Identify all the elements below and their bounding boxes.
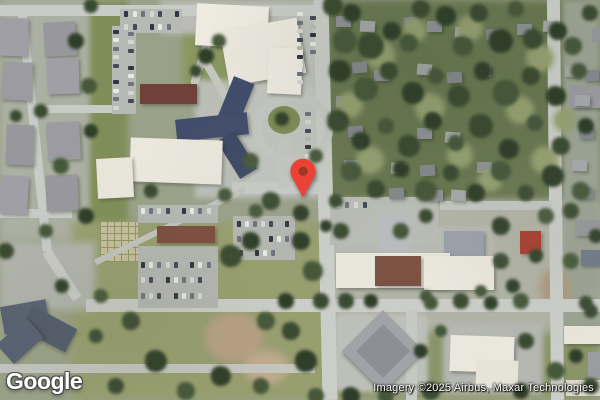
car: [174, 208, 178, 214]
car: [113, 97, 119, 101]
car: [113, 38, 119, 42]
car: [237, 221, 241, 227]
building-apartment: [0, 18, 29, 57]
tree: [414, 344, 428, 358]
car: [207, 262, 211, 268]
car: [141, 11, 145, 17]
car: [166, 208, 170, 214]
car: [190, 293, 194, 299]
tree: [424, 112, 442, 130]
building-house: [420, 164, 436, 176]
car: [113, 106, 119, 110]
tree: [329, 60, 351, 82]
building-house: [360, 20, 376, 32]
car: [150, 24, 154, 30]
tree: [342, 387, 360, 400]
tree: [212, 34, 226, 48]
tree: [303, 261, 323, 281]
car: [174, 293, 178, 299]
tree: [378, 118, 394, 134]
tree: [78, 208, 94, 224]
building-brown: [375, 256, 421, 286]
car: [271, 250, 275, 256]
tree: [10, 110, 22, 122]
tree: [578, 118, 594, 134]
tree: [475, 285, 487, 297]
tree: [448, 85, 470, 107]
tree: [190, 65, 202, 77]
car: [305, 129, 311, 133]
car: [113, 80, 119, 84]
tree: [320, 220, 332, 232]
tree: [518, 185, 534, 201]
tree: [491, 161, 511, 181]
tree: [435, 325, 447, 337]
tree: [84, 0, 98, 13]
car: [157, 293, 161, 299]
car: [310, 33, 316, 37]
car: [128, 66, 134, 70]
tree: [420, 290, 432, 302]
car: [354, 202, 358, 208]
car: [128, 32, 134, 36]
car: [149, 293, 153, 299]
car: [182, 208, 186, 214]
car: [310, 16, 316, 20]
tree: [453, 293, 469, 309]
tree: [380, 62, 398, 80]
tree: [453, 36, 473, 56]
tree: [513, 293, 529, 309]
car: [263, 250, 267, 256]
car: [128, 99, 134, 103]
car: [198, 208, 202, 214]
tree: [508, 1, 524, 17]
map-scene: [0, 0, 600, 400]
car: [157, 262, 161, 268]
car: [113, 47, 119, 51]
car: [174, 262, 178, 268]
car: [297, 12, 303, 16]
tree: [292, 232, 310, 250]
car: [141, 262, 145, 268]
building-apartment: [46, 57, 79, 94]
car: [182, 277, 186, 283]
tree: [571, 63, 587, 79]
tree: [308, 388, 324, 400]
building: [564, 326, 600, 344]
tree: [470, 4, 488, 22]
carport: [444, 231, 484, 259]
building: [592, 28, 600, 42]
tree: [469, 114, 493, 138]
building-apartment: [0, 175, 29, 214]
tree: [393, 223, 409, 239]
car: [166, 293, 170, 299]
car: [113, 89, 119, 93]
car: [128, 40, 134, 44]
tree: [81, 78, 97, 94]
car: [261, 236, 265, 242]
building-apartment: [1, 61, 33, 101]
building-brown: [140, 84, 197, 104]
building-apartment: [46, 121, 81, 161]
car: [305, 120, 311, 124]
car: [124, 24, 128, 30]
car: [124, 11, 128, 17]
car: [158, 24, 162, 30]
tree: [546, 86, 566, 106]
building-apartment: [45, 174, 78, 211]
tree: [419, 209, 433, 223]
car: [297, 55, 303, 59]
tree: [400, 34, 418, 52]
tree: [522, 67, 540, 85]
tree: [108, 378, 124, 394]
car: [269, 236, 273, 242]
tree: [327, 110, 349, 132]
car: [149, 262, 153, 268]
tree: [333, 29, 357, 53]
car: [141, 208, 145, 214]
tree: [383, 22, 401, 40]
car: [113, 30, 119, 34]
car: [285, 221, 289, 227]
marker-pin-dot: [298, 167, 307, 176]
car: [157, 208, 161, 214]
tree: [467, 184, 485, 202]
car: [190, 277, 194, 283]
car: [247, 250, 251, 256]
tree: [563, 253, 579, 269]
lawn-patch: [553, 108, 577, 132]
car: [297, 46, 303, 50]
road: [36, 105, 118, 113]
tree: [177, 382, 195, 400]
tree: [367, 180, 385, 198]
tree: [448, 135, 464, 151]
car: [166, 262, 170, 268]
tree: [538, 208, 554, 224]
tree: [94, 289, 108, 303]
tree: [436, 6, 456, 26]
car: [277, 236, 281, 242]
tree: [262, 192, 280, 210]
car: [261, 221, 265, 227]
tree: [358, 33, 384, 59]
map-pin-icon: [290, 158, 316, 198]
car: [182, 293, 186, 299]
tree: [584, 304, 598, 318]
building: [581, 250, 600, 266]
car: [297, 72, 303, 76]
tree: [489, 29, 513, 53]
car: [269, 221, 273, 227]
tree: [364, 294, 378, 308]
building-brown: [157, 226, 215, 243]
tree: [144, 184, 158, 198]
car: [157, 277, 161, 283]
tree: [34, 104, 48, 118]
tree: [39, 224, 53, 238]
car: [190, 262, 194, 268]
car: [255, 250, 259, 256]
tree: [338, 293, 354, 309]
tree: [55, 279, 69, 293]
car: [175, 11, 179, 17]
car: [297, 29, 303, 33]
building-house: [447, 71, 463, 83]
tree: [354, 77, 378, 101]
car: [128, 108, 134, 112]
tree: [278, 293, 294, 309]
tree: [218, 188, 232, 202]
google-logo[interactable]: Google: [6, 368, 82, 395]
car: [113, 72, 119, 76]
building-white: [129, 137, 222, 184]
tree: [53, 158, 69, 174]
building-house: [389, 187, 405, 199]
tree: [552, 137, 570, 155]
car: [150, 11, 154, 17]
building-house: [575, 94, 591, 106]
tree: [529, 249, 543, 263]
building-house: [572, 159, 588, 171]
tree: [198, 48, 214, 64]
tree: [582, 5, 598, 21]
tree: [443, 165, 459, 181]
tree: [220, 245, 242, 267]
tree: [242, 232, 260, 250]
car: [297, 21, 303, 25]
car: [141, 24, 145, 30]
car: [297, 38, 303, 42]
car: [253, 221, 257, 227]
car: [305, 112, 311, 116]
tree: [293, 205, 309, 221]
car: [149, 208, 153, 214]
tree: [563, 203, 579, 219]
car: [128, 49, 134, 53]
car: [345, 202, 349, 208]
car: [113, 55, 119, 59]
car: [128, 74, 134, 78]
tree: [415, 180, 437, 202]
tree: [428, 68, 444, 84]
tree: [564, 37, 582, 55]
car: [141, 277, 145, 283]
tree: [549, 22, 567, 40]
tree: [569, 349, 583, 363]
car: [167, 11, 171, 17]
car: [166, 277, 170, 283]
satellite-map[interactable]: Google Imagery ©2025 Airbus, Maxar Techn…: [0, 0, 600, 400]
car: [190, 208, 194, 214]
car: [305, 145, 311, 149]
car: [198, 293, 202, 299]
car: [133, 24, 137, 30]
tree: [89, 329, 103, 343]
tree: [295, 350, 317, 372]
car: [113, 64, 119, 68]
tree: [249, 204, 263, 218]
car: [310, 50, 316, 54]
tree: [542, 165, 564, 187]
tree: [313, 293, 329, 309]
tree: [484, 296, 498, 310]
tree: [84, 124, 98, 138]
tree: [499, 139, 519, 159]
car: [310, 42, 316, 46]
car: [158, 11, 162, 17]
building-house: [352, 61, 368, 73]
tree: [343, 4, 361, 22]
car: [182, 262, 186, 268]
car: [149, 277, 153, 283]
tree: [402, 82, 424, 104]
tree: [493, 253, 509, 269]
car: [198, 277, 202, 283]
tree: [412, 0, 430, 18]
map-marker[interactable]: [290, 158, 316, 198]
car: [305, 137, 311, 141]
tree: [523, 29, 543, 49]
car: [297, 63, 303, 67]
tree: [547, 362, 565, 380]
tree: [492, 217, 510, 235]
map-attribution: Imagery ©2025 Airbus, Maxar Technologies: [373, 382, 594, 394]
tree: [253, 378, 269, 394]
car: [277, 221, 281, 227]
building-apartment: [5, 125, 34, 166]
tree: [243, 153, 259, 169]
building-white: [96, 157, 134, 199]
car: [237, 236, 241, 242]
tree: [68, 33, 84, 49]
car: [207, 208, 211, 214]
tree: [493, 80, 519, 106]
tree: [393, 161, 409, 177]
tree: [589, 229, 600, 243]
building: [588, 352, 600, 378]
tree: [474, 62, 492, 80]
tree: [122, 312, 140, 330]
road: [440, 201, 552, 210]
car: [245, 221, 249, 227]
tree: [572, 182, 590, 200]
tree: [518, 333, 534, 349]
tree: [341, 161, 361, 181]
car: [128, 91, 134, 95]
car: [297, 80, 303, 84]
car: [363, 202, 367, 208]
tree: [352, 132, 370, 150]
tree: [282, 322, 300, 340]
car: [133, 11, 137, 17]
building-house: [451, 189, 467, 201]
car: [128, 57, 134, 61]
tree: [398, 135, 420, 157]
car: [174, 277, 178, 283]
car: [198, 262, 202, 268]
car: [167, 24, 171, 30]
car: [141, 293, 145, 299]
tree: [333, 223, 349, 239]
tree: [329, 194, 343, 208]
tree: [506, 279, 520, 293]
marker-pin-path: [290, 159, 315, 198]
tree: [527, 115, 543, 131]
tree: [275, 112, 289, 126]
car: [310, 25, 316, 29]
car: [128, 82, 134, 86]
tree: [211, 366, 231, 386]
tree: [257, 312, 275, 330]
car: [285, 236, 289, 242]
tree: [145, 350, 167, 372]
